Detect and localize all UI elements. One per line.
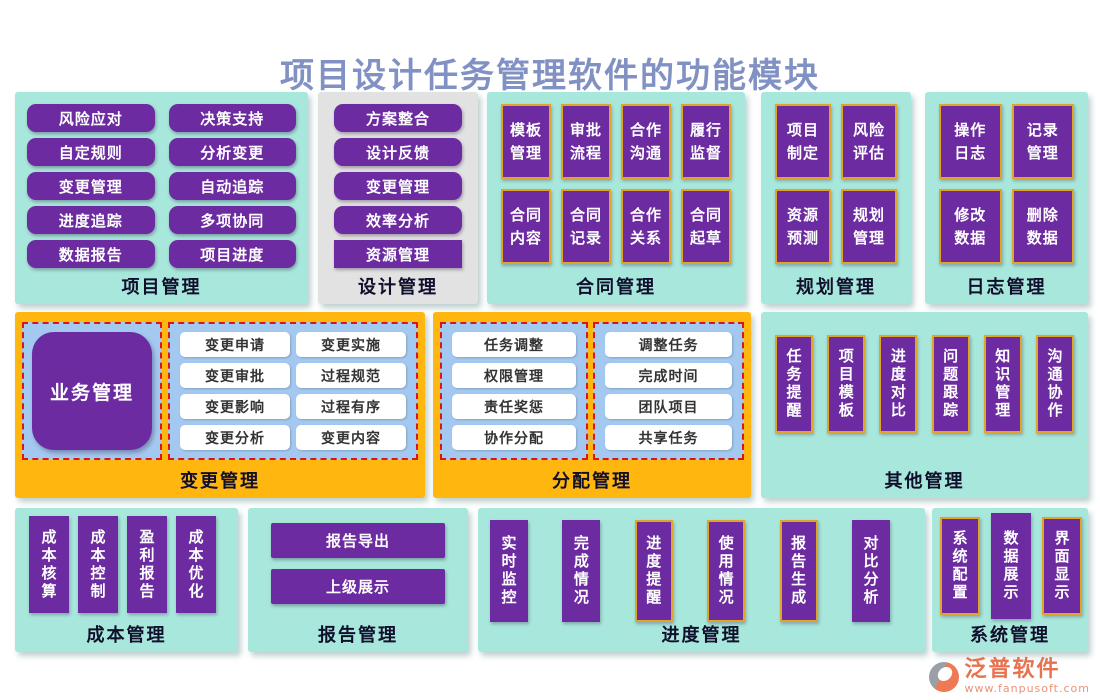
panel-allocation-management: 泛普软件 FANPU SOFTWARE 任务调整 权限管理 责任奖惩 协作分配 … bbox=[433, 312, 751, 498]
panel-label: 项目管理 bbox=[15, 273, 308, 299]
progress-btn-2[interactable]: 完成情况 bbox=[562, 520, 600, 622]
panel-label: 设计管理 bbox=[318, 273, 478, 299]
panel-design-management: 方案整合 设计反馈 变更管理 效率分析 资源管理 设计管理 bbox=[318, 92, 478, 304]
panel-progress-management: 实时监控 完成情况 进度提醒 使用情况 报告生成 对比分析 进度管理 bbox=[478, 508, 925, 652]
project-btn-3[interactable]: 自定规则 bbox=[27, 138, 155, 166]
contract-btn-1[interactable]: 模板 管理 bbox=[501, 104, 551, 179]
project-btn-8[interactable]: 多项协同 bbox=[169, 206, 297, 234]
project-btn-5[interactable]: 变更管理 bbox=[27, 172, 155, 200]
change-hub-subpanel: 业务管理 bbox=[22, 322, 162, 460]
progress-btn-3[interactable]: 进度提醒 bbox=[635, 520, 673, 622]
cost-btn-2[interactable]: 成本控制 bbox=[78, 516, 118, 613]
contract-btn-8[interactable]: 合同 起草 bbox=[681, 189, 731, 264]
change-items-subpanel: 变更申请 变更实施 变更审批 过程规范 变更影响 过程有序 变更分析 变更内容 bbox=[168, 322, 418, 460]
cost-btn-3[interactable]: 盈利报告 bbox=[127, 516, 167, 613]
panel-report-management: 报告导出 上级展示 报告管理 bbox=[248, 508, 468, 652]
panel-change-management: 业务管理 变更申请 变更实施 变更审批 过程规范 变更影响 过程有序 变更分析 … bbox=[15, 312, 425, 498]
project-btn-10[interactable]: 项目进度 bbox=[169, 240, 297, 268]
allocation-btn-7[interactable]: 团队项目 bbox=[605, 394, 732, 419]
system-btn-1[interactable]: 系统配置 bbox=[940, 517, 980, 615]
panel-label: 变更管理 bbox=[15, 467, 425, 493]
other-btn-4[interactable]: 问题跟踪 bbox=[932, 335, 970, 433]
panel-contract-management: 模板 管理 审批 流程 合作 沟通 履行 监督 合同 内容 合同 记录 合作 关… bbox=[487, 92, 745, 304]
other-btn-3[interactable]: 进度对比 bbox=[879, 335, 917, 433]
change-btn-6[interactable]: 过程有序 bbox=[296, 394, 406, 419]
log-btn-3[interactable]: 修改 数据 bbox=[939, 189, 1002, 264]
design-btn-2[interactable]: 设计反馈 bbox=[334, 138, 462, 166]
other-btn-1[interactable]: 任务提醒 bbox=[775, 335, 813, 433]
design-btn-4[interactable]: 效率分析 bbox=[334, 206, 462, 234]
panel-label: 其他管理 bbox=[761, 467, 1088, 493]
other-btn-2[interactable]: 项目模板 bbox=[827, 335, 865, 433]
log-btn-2[interactable]: 记录 管理 bbox=[1012, 104, 1075, 179]
change-btn-1[interactable]: 变更申请 bbox=[180, 332, 290, 357]
panel-label: 进度管理 bbox=[478, 621, 925, 647]
panel-label: 报告管理 bbox=[248, 621, 468, 647]
panel-label: 合同管理 bbox=[487, 273, 745, 299]
progress-btn-1[interactable]: 实时监控 bbox=[490, 520, 528, 622]
project-btn-9[interactable]: 数据报告 bbox=[27, 240, 155, 268]
allocation-btn-2[interactable]: 权限管理 bbox=[452, 363, 576, 388]
fanpu-logo-text: 泛普软件 bbox=[965, 659, 1061, 681]
report-btn-1[interactable]: 报告导出 bbox=[271, 523, 445, 558]
other-btn-5[interactable]: 知识管理 bbox=[984, 335, 1022, 433]
panel-label: 日志管理 bbox=[925, 273, 1088, 299]
panel-system-management: 系统配置 数据展示 界面显示 系统管理 bbox=[932, 508, 1088, 652]
allocation-btn-4[interactable]: 协作分配 bbox=[452, 425, 576, 450]
fanpu-logo-url: www.fanpusoft.com bbox=[965, 683, 1090, 694]
change-btn-8[interactable]: 变更内容 bbox=[296, 425, 406, 450]
panel-label: 分配管理 bbox=[433, 467, 751, 493]
allocation-btn-3[interactable]: 责任奖惩 bbox=[452, 394, 576, 419]
allocation-btn-1[interactable]: 任务调整 bbox=[452, 332, 576, 357]
fanpu-logo-icon bbox=[929, 662, 959, 692]
canvas: 项目设计任务管理软件的功能模块 风险应对 决策支持 自定规则 分析变更 变更管理… bbox=[0, 0, 1100, 700]
cost-btn-4[interactable]: 成本优化 bbox=[176, 516, 216, 613]
planning-btn-2[interactable]: 风险 评估 bbox=[841, 104, 897, 179]
fanpu-logo[interactable]: 泛普软件 www.fanpusoft.com bbox=[929, 659, 1090, 694]
project-btn-6[interactable]: 自动追踪 bbox=[169, 172, 297, 200]
planning-btn-1[interactable]: 项目 制定 bbox=[775, 104, 831, 179]
contract-btn-5[interactable]: 合同 内容 bbox=[501, 189, 551, 264]
design-btn-5[interactable]: 资源管理 bbox=[334, 240, 462, 268]
allocation-btn-8[interactable]: 共享任务 bbox=[605, 425, 732, 450]
allocation-btn-6[interactable]: 完成时间 bbox=[605, 363, 732, 388]
panel-other-management: 任务提醒 项目模板 进度对比 问题跟踪 知识管理 沟通协作 其他管理 bbox=[761, 312, 1088, 498]
planning-btn-4[interactable]: 规划 管理 bbox=[841, 189, 897, 264]
project-btn-4[interactable]: 分析变更 bbox=[169, 138, 297, 166]
system-btn-3[interactable]: 界面显示 bbox=[1042, 517, 1082, 615]
change-btn-4[interactable]: 过程规范 bbox=[296, 363, 406, 388]
change-btn-7[interactable]: 变更分析 bbox=[180, 425, 290, 450]
business-management-button[interactable]: 业务管理 bbox=[32, 332, 152, 450]
contract-btn-6[interactable]: 合同 记录 bbox=[561, 189, 611, 264]
page-title: 项目设计任务管理软件的功能模块 bbox=[0, 48, 1100, 97]
panel-planning-management: 项目 制定 风险 评估 资源 预测 规划 管理 规划管理 bbox=[761, 92, 911, 304]
progress-btn-5[interactable]: 报告生成 bbox=[780, 520, 818, 622]
panel-cost-management: 成本核算 成本控制 盈利报告 成本优化 成本管理 bbox=[15, 508, 238, 652]
allocation-btn-5[interactable]: 调整任务 bbox=[605, 332, 732, 357]
contract-btn-2[interactable]: 审批 流程 bbox=[561, 104, 611, 179]
system-btn-2[interactable]: 数据展示 bbox=[991, 513, 1031, 619]
contract-btn-7[interactable]: 合作 关系 bbox=[621, 189, 671, 264]
progress-btn-4[interactable]: 使用情况 bbox=[707, 520, 745, 622]
project-btn-1[interactable]: 风险应对 bbox=[27, 104, 155, 132]
contract-btn-4[interactable]: 履行 监督 bbox=[681, 104, 731, 179]
planning-btn-3[interactable]: 资源 预测 bbox=[775, 189, 831, 264]
allocation-right-subpanel: 调整任务 完成时间 团队项目 共享任务 bbox=[593, 322, 744, 460]
report-btn-2[interactable]: 上级展示 bbox=[271, 569, 445, 604]
panel-project-management: 风险应对 决策支持 自定规则 分析变更 变更管理 自动追踪 进度追踪 多项协同 … bbox=[15, 92, 308, 304]
change-btn-5[interactable]: 变更影响 bbox=[180, 394, 290, 419]
project-btn-2[interactable]: 决策支持 bbox=[169, 104, 297, 132]
log-btn-4[interactable]: 删除 数据 bbox=[1012, 189, 1075, 264]
log-btn-1[interactable]: 操作 日志 bbox=[939, 104, 1002, 179]
design-btn-3[interactable]: 变更管理 bbox=[334, 172, 462, 200]
panel-label: 成本管理 bbox=[15, 621, 238, 647]
other-btn-6[interactable]: 沟通协作 bbox=[1036, 335, 1074, 433]
project-btn-7[interactable]: 进度追踪 bbox=[27, 206, 155, 234]
change-btn-2[interactable]: 变更实施 bbox=[296, 332, 406, 357]
cost-btn-1[interactable]: 成本核算 bbox=[29, 516, 69, 613]
panel-label: 规划管理 bbox=[761, 273, 911, 299]
panel-label: 系统管理 bbox=[932, 621, 1088, 647]
change-btn-3[interactable]: 变更审批 bbox=[180, 363, 290, 388]
panel-log-management: 操作 日志 记录 管理 修改 数据 删除 数据 日志管理 bbox=[925, 92, 1088, 304]
allocation-left-subpanel: 任务调整 权限管理 责任奖惩 协作分配 bbox=[440, 322, 588, 460]
progress-btn-6[interactable]: 对比分析 bbox=[852, 520, 890, 622]
contract-btn-3[interactable]: 合作 沟通 bbox=[621, 104, 671, 179]
design-btn-1[interactable]: 方案整合 bbox=[334, 104, 462, 132]
